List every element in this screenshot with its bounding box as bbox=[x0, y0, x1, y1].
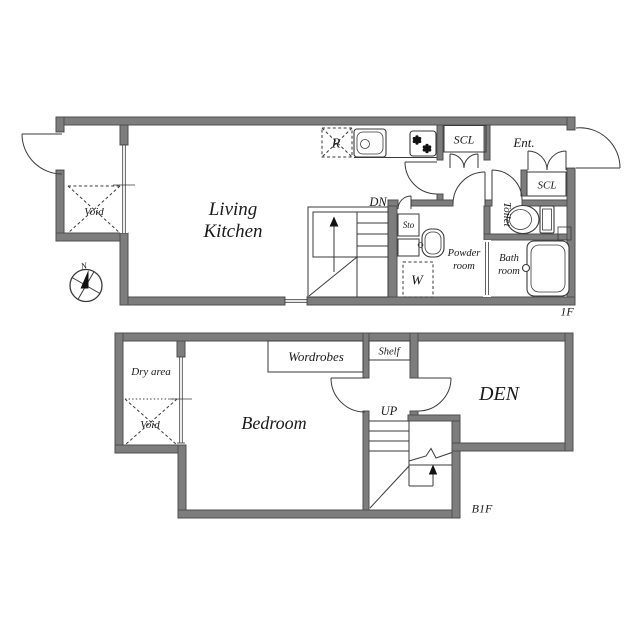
floor-plan-page: Living Kitchen Ent. SCL SCL Toilet Powde… bbox=[0, 0, 640, 640]
stove-icon bbox=[410, 131, 436, 156]
sto-label: Sto bbox=[403, 220, 415, 230]
floor-plan-drawing: Living Kitchen Ent. SCL SCL Toilet Powde… bbox=[0, 0, 640, 640]
living-kitchen-label-line2: Kitchen bbox=[202, 221, 262, 242]
compass-needle bbox=[81, 270, 89, 289]
window-living-south bbox=[285, 297, 307, 305]
window-dryarea-bedroom bbox=[170, 357, 192, 443]
window-void-living bbox=[113, 145, 135, 233]
stair-break-line bbox=[409, 449, 452, 462]
dn-label: DN bbox=[368, 195, 387, 209]
floor-1f: Living Kitchen Ent. SCL SCL Toilet Powde… bbox=[22, 117, 620, 319]
shelf-label: Shelf bbox=[379, 347, 402, 358]
door-bathroom-sliding bbox=[483, 240, 491, 297]
floor-b1f: Bedroom DEN Dry area Void Wordrobes Shel… bbox=[115, 333, 573, 518]
void-1f-label: Void bbox=[84, 206, 104, 218]
bathtub-icon bbox=[523, 241, 570, 296]
door-powder-small bbox=[398, 196, 411, 209]
compass-icon: N bbox=[70, 260, 102, 301]
toilet-label: Toilet bbox=[501, 202, 513, 228]
door-den bbox=[418, 378, 451, 411]
bath-room-label-line1: Bath bbox=[499, 253, 519, 264]
door-entrance-main bbox=[567, 128, 620, 168]
bath-room-label-line2: room bbox=[498, 266, 520, 277]
door-toilet bbox=[492, 170, 522, 200]
wardrobe-label: Wordrobes bbox=[288, 349, 344, 364]
door-bedroom bbox=[331, 378, 365, 412]
refrigerator-label: R bbox=[331, 137, 341, 152]
den-label: DEN bbox=[478, 383, 521, 405]
kitchen-sink-icon bbox=[354, 129, 386, 157]
door-scl-hall-double bbox=[450, 154, 478, 168]
bedroom-label: Bedroom bbox=[241, 413, 306, 433]
stairs-b1f bbox=[369, 421, 452, 508]
floor-label-b1f: B1F bbox=[472, 502, 493, 516]
door-service-left bbox=[22, 132, 64, 174]
entrance-label: Ent. bbox=[512, 135, 534, 150]
scl-entrance-label: SCL bbox=[538, 180, 557, 192]
toilet-icon bbox=[507, 206, 554, 234]
dry-area-label: Dry area bbox=[130, 366, 171, 378]
powder-room-label-line2: room bbox=[453, 261, 475, 272]
up-label: UP bbox=[381, 404, 398, 418]
door-powder-main bbox=[453, 172, 485, 204]
storage-lower-box bbox=[398, 239, 419, 256]
door-kitchen-hall bbox=[405, 162, 437, 194]
washbasin-icon bbox=[418, 229, 444, 257]
door-scl-entrance-double bbox=[528, 151, 566, 170]
stair-direction-arrow-b1f bbox=[409, 465, 437, 487]
powder-room-label-line1: Powder bbox=[447, 248, 482, 259]
living-kitchen-label-line1: Living bbox=[208, 199, 258, 220]
washer-label: W bbox=[411, 274, 424, 289]
stairs-1f bbox=[308, 207, 388, 297]
scl-hall-label: SCL bbox=[454, 133, 475, 147]
floor-label-1f: 1F bbox=[560, 305, 574, 319]
void-b1f-label: Void bbox=[140, 419, 160, 431]
stair-direction-arrow-1f bbox=[330, 217, 339, 273]
